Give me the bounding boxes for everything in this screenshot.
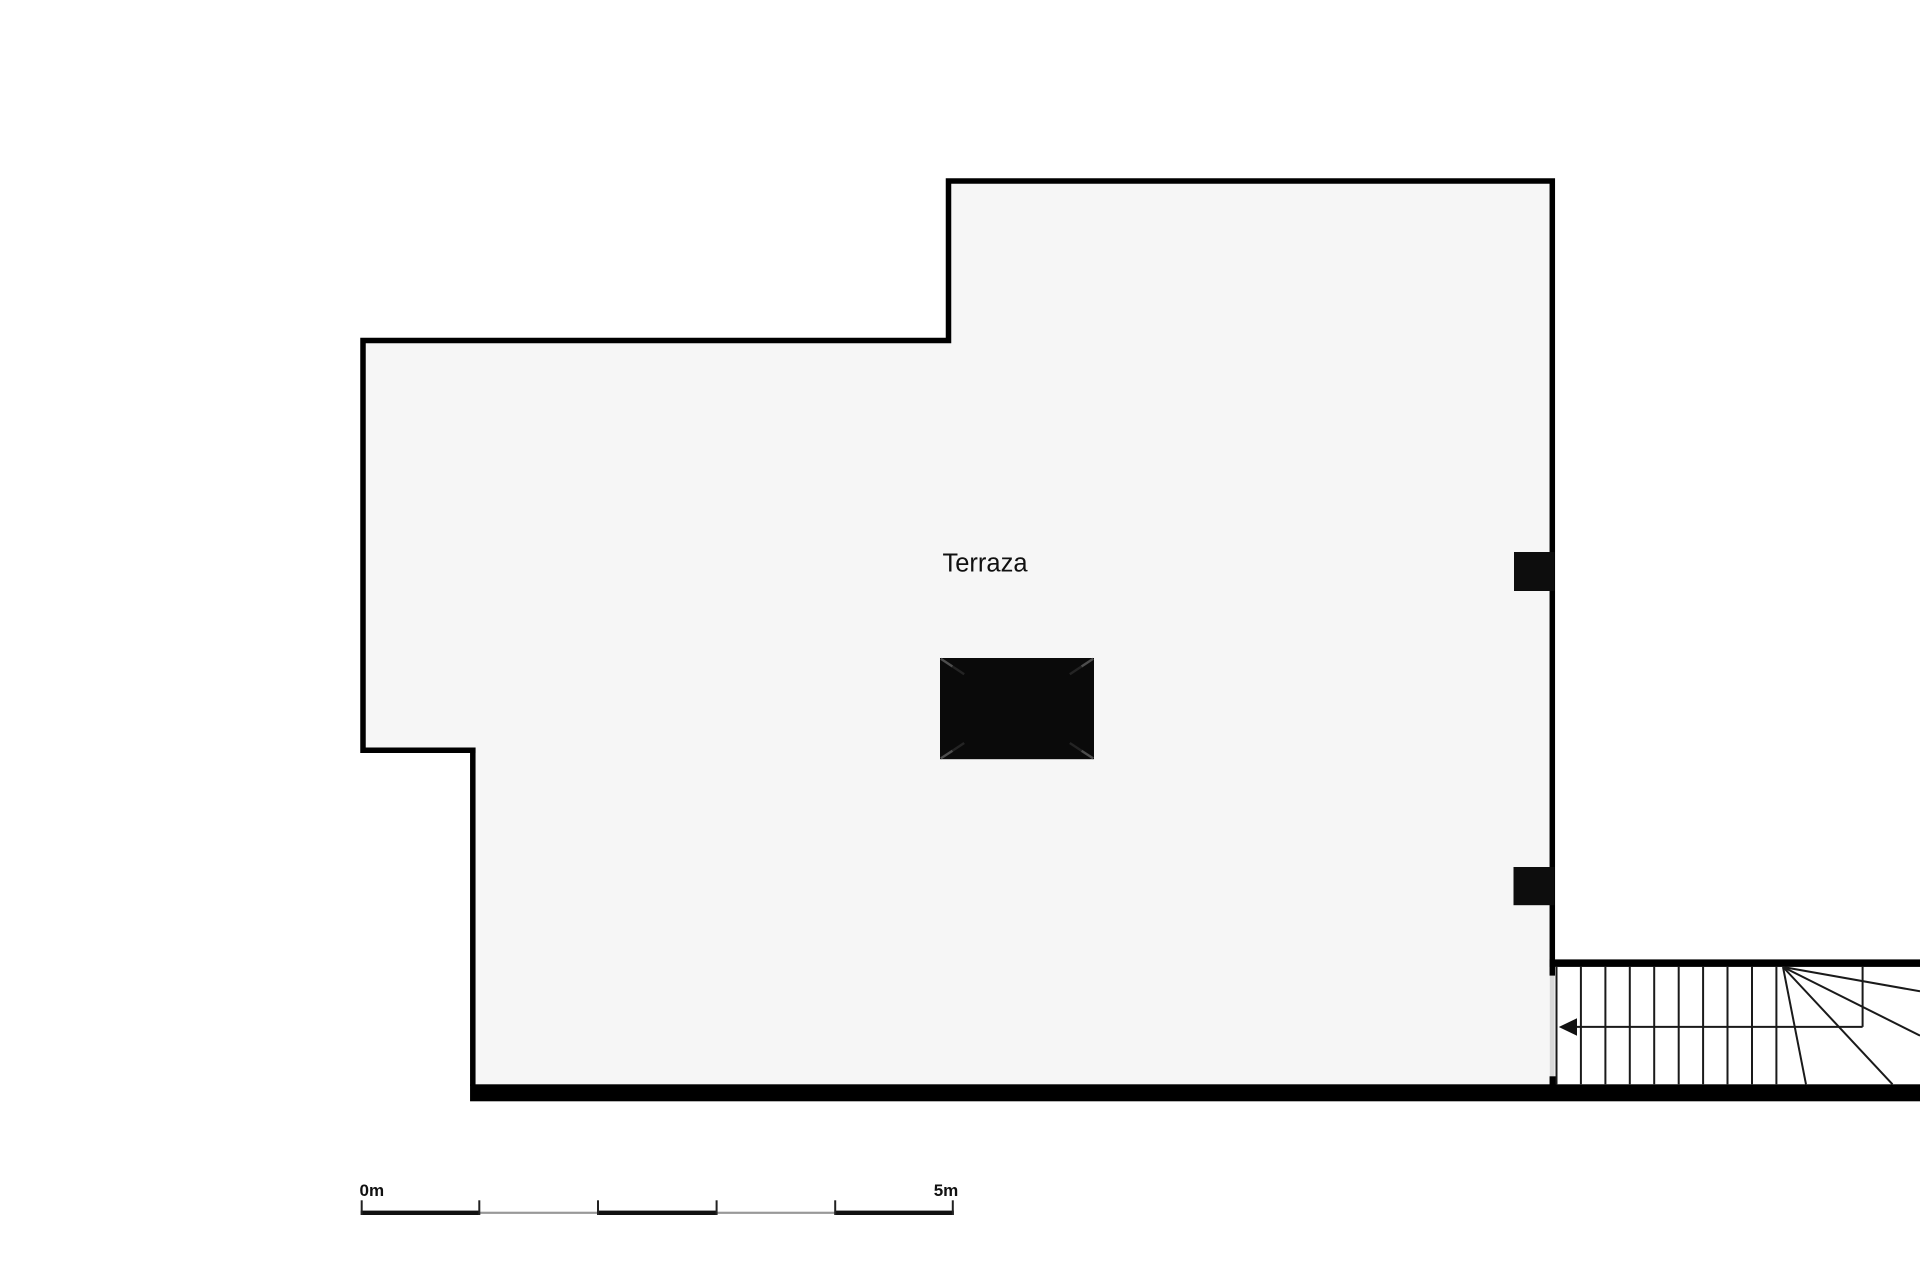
svg-text:Terraza: Terraza: [942, 550, 1028, 578]
svg-text:5m: 5m: [934, 1181, 959, 1200]
svg-text:0m: 0m: [360, 1181, 385, 1200]
